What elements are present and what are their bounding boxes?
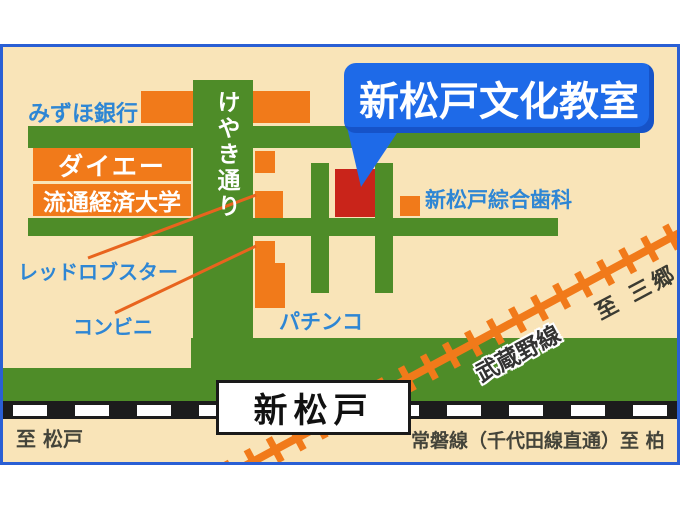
station-sign: 新松戸 bbox=[216, 380, 411, 435]
sign-daiei: ダイエー bbox=[33, 148, 191, 181]
keyaki-street-label: けやき通り bbox=[209, 90, 243, 265]
to-matsudo-label: 至 松戸 bbox=[16, 423, 83, 452]
road-horizontal-2 bbox=[28, 218, 558, 236]
convenience-store-label: コンビニ bbox=[73, 311, 153, 340]
building-red-lobster bbox=[255, 191, 283, 218]
title-bubble: 新松戸文化教室 bbox=[344, 63, 654, 133]
road-vertical-a bbox=[311, 163, 329, 293]
building-dental-clinic bbox=[400, 196, 420, 216]
mizuho-bank-label: みずほ銀行 bbox=[28, 96, 138, 128]
dental-clinic-label: 新松戸綜合歯科 bbox=[425, 184, 572, 214]
station-name: 新松戸 bbox=[254, 383, 374, 432]
building-small-1 bbox=[255, 151, 275, 173]
building-pachinko bbox=[255, 263, 285, 308]
title-bubble-label: 新松戸文化教室 bbox=[359, 69, 639, 127]
joban-line-label: 常磐線（千代田線直通）至 柏 bbox=[411, 426, 665, 453]
sign-university: 流通経済大学 bbox=[33, 184, 191, 216]
pachinko-label: パチンコ bbox=[279, 306, 363, 336]
daiei-label: ダイエー bbox=[58, 147, 166, 183]
map-frame: ダイエー 流通経済大学 新松戸 新松戸文化教室 けやき通り みずほ銀行 新松戸綜 bbox=[0, 44, 680, 465]
building-culture-classroom bbox=[335, 169, 375, 217]
access-map-image: ダイエー 流通経済大学 新松戸 新松戸文化教室 けやき通り みずほ銀行 新松戸綜 bbox=[0, 0, 680, 510]
road-bottom-wide-upper bbox=[191, 338, 680, 371]
road-vertical-b bbox=[375, 163, 393, 293]
to-misato-label: 至 三郷 bbox=[589, 256, 680, 326]
red-lobster-label: レッドロブスター bbox=[18, 256, 178, 285]
university-label: 流通経済大学 bbox=[43, 183, 181, 217]
building-convenience-store bbox=[255, 241, 275, 263]
